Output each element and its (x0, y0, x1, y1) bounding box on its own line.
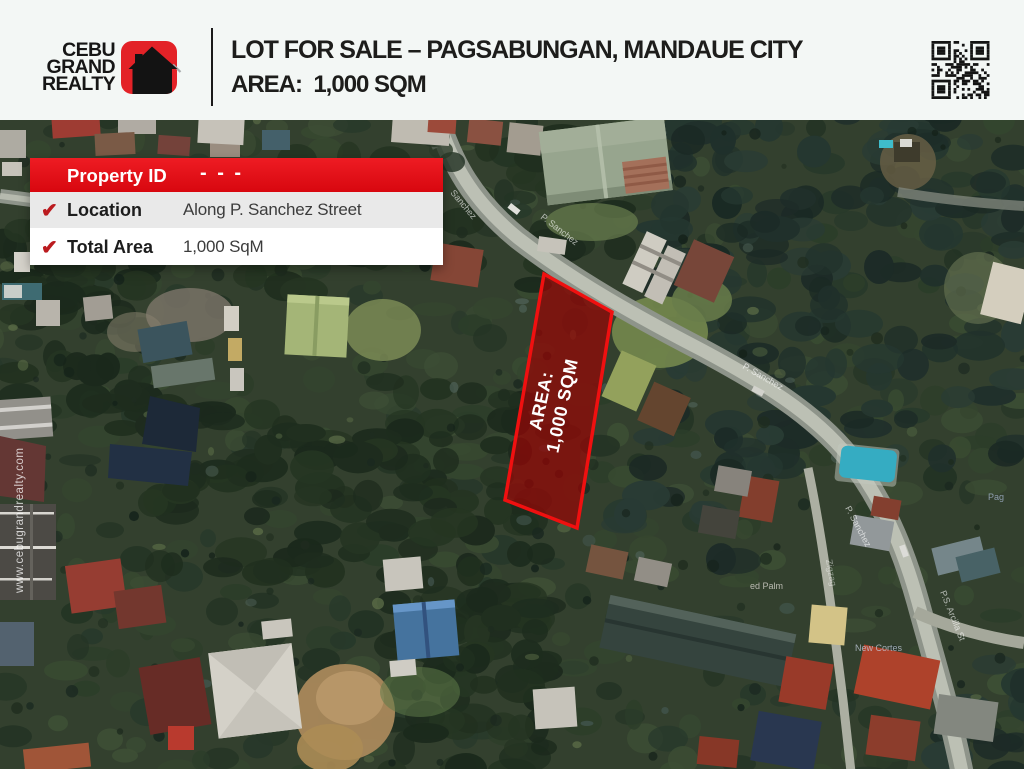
svg-text:ed Palm: ed Palm (750, 581, 783, 591)
svg-text:New Cortes: New Cortes (855, 643, 903, 653)
svg-text:Pag: Pag (988, 492, 1004, 502)
